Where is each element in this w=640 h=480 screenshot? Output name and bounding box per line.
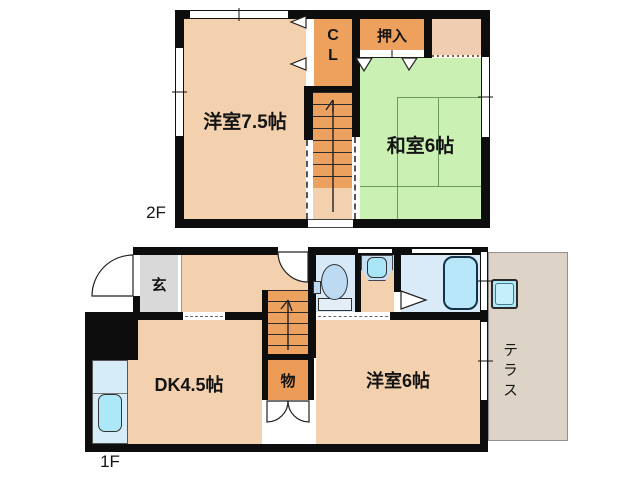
wall-segment [352, 90, 360, 137]
tatami-line [397, 97, 481, 98]
hall-door-opening [278, 247, 308, 255]
stairwell-opening [308, 219, 353, 228]
tatami-line [360, 186, 481, 187]
room-label-storage: 物 [268, 370, 308, 391]
room-label-1f-western: 洋室6帖 [316, 367, 480, 393]
floor-label-2f: 2F [138, 203, 174, 223]
entrance-door-arc-icon [92, 255, 133, 296]
bathtub-icon [443, 256, 478, 310]
room-label-dk: DK4.5帖 [104, 371, 274, 397]
room-label-2f-closet-l: L [314, 47, 352, 65]
room-label-2f-western: 洋室7.5帖 [184, 107, 306, 134]
room-label-2f-closet-c: C [314, 27, 352, 45]
room-label-genkan: 玄 [140, 274, 178, 295]
wall-segment [390, 312, 488, 320]
washing-machine-pan-icon [491, 279, 518, 309]
wall-segment [394, 247, 401, 292]
stair-landing-2f [313, 188, 352, 219]
floorplan-canvas: 洋室7.5帖 和室6帖 C L 押入 2F テラス [0, 0, 640, 480]
bath-door-opening [394, 292, 401, 312]
alcove-dotted-edge [432, 55, 481, 57]
terrace-label: テラス [499, 312, 520, 432]
floor-label-1f: 1F [92, 452, 128, 472]
window [358, 248, 392, 254]
wall-segment [308, 358, 314, 400]
window [480, 322, 488, 400]
room-label-2f-oshiire: 押入 [360, 25, 424, 46]
window [190, 10, 288, 19]
closet-door-track [306, 19, 314, 86]
storage-door-area [264, 400, 308, 422]
sliding-door-genkan [183, 312, 225, 320]
wall-segment [352, 10, 360, 90]
tatami-line [397, 186, 398, 219]
toilet-bowl-icon [321, 264, 348, 300]
wall-segment [424, 10, 432, 58]
window [412, 248, 472, 254]
stair-railing-dashed [306, 140, 312, 219]
window [175, 48, 184, 136]
refrigerator-space [90, 318, 138, 360]
wall-segment [308, 247, 316, 358]
wall-1f-bottom [85, 444, 488, 452]
wall-segment [262, 354, 314, 360]
stairs-1f [268, 290, 308, 356]
room-2f-alcove [432, 19, 481, 55]
genkan-step-edge [178, 255, 182, 312]
window [480, 252, 488, 310]
room-label-2f-japanese: 和室6帖 [360, 131, 481, 158]
stairs-2f [313, 92, 352, 188]
wall-segment [355, 247, 361, 312]
toilet-flush-icon [313, 281, 321, 294]
washbasin-icon [367, 257, 387, 278]
oshiire-door-track [360, 50, 424, 58]
kitchen-sink-icon [98, 394, 122, 432]
entrance-door-opening [133, 255, 140, 296]
sliding-door-wetarea [316, 312, 390, 320]
window [481, 57, 490, 137]
